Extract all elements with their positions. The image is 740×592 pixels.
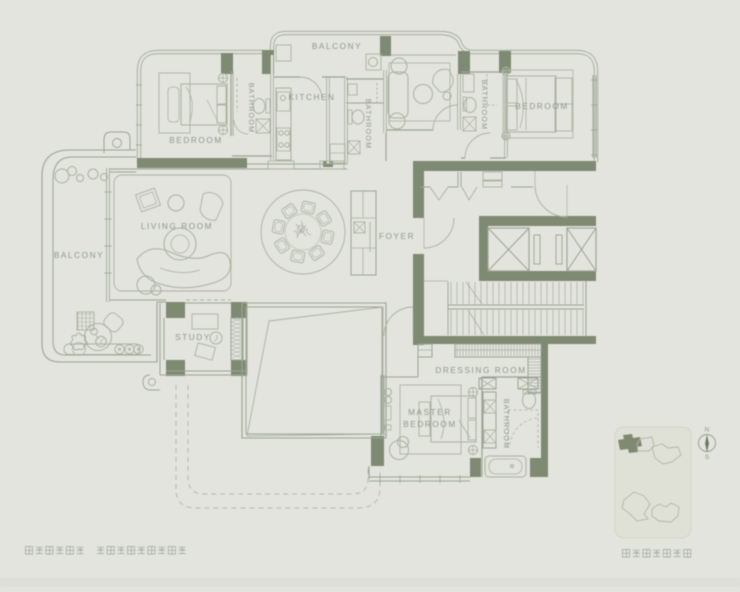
svg-text:MASTER: MASTER bbox=[408, 408, 452, 417]
svg-text:BATHROOM: BATHROOM bbox=[502, 399, 511, 450]
svg-text:N: N bbox=[705, 427, 710, 434]
svg-text:BEDROOM: BEDROOM bbox=[403, 420, 457, 429]
svg-text:BEDROOM: BEDROOM bbox=[515, 102, 569, 111]
svg-text:BATHROOM: BATHROOM bbox=[364, 99, 373, 150]
svg-text:DRESSING ROOM: DRESSING ROOM bbox=[435, 366, 526, 375]
svg-text:S: S bbox=[705, 454, 710, 461]
svg-text:BATHROOM: BATHROOM bbox=[480, 80, 489, 131]
svg-text:BATHROOM: BATHROOM bbox=[247, 83, 256, 134]
svg-text:LIVING ROOM: LIVING ROOM bbox=[141, 222, 213, 231]
svg-text:BALCONY: BALCONY bbox=[312, 42, 362, 51]
svg-text:STUDY: STUDY bbox=[175, 333, 211, 342]
svg-text:KITCHEN: KITCHEN bbox=[288, 93, 335, 102]
svg-text:FOYER: FOYER bbox=[379, 232, 415, 241]
svg-text:BEDROOM: BEDROOM bbox=[169, 136, 223, 145]
svg-text:BALCONY: BALCONY bbox=[54, 251, 104, 260]
